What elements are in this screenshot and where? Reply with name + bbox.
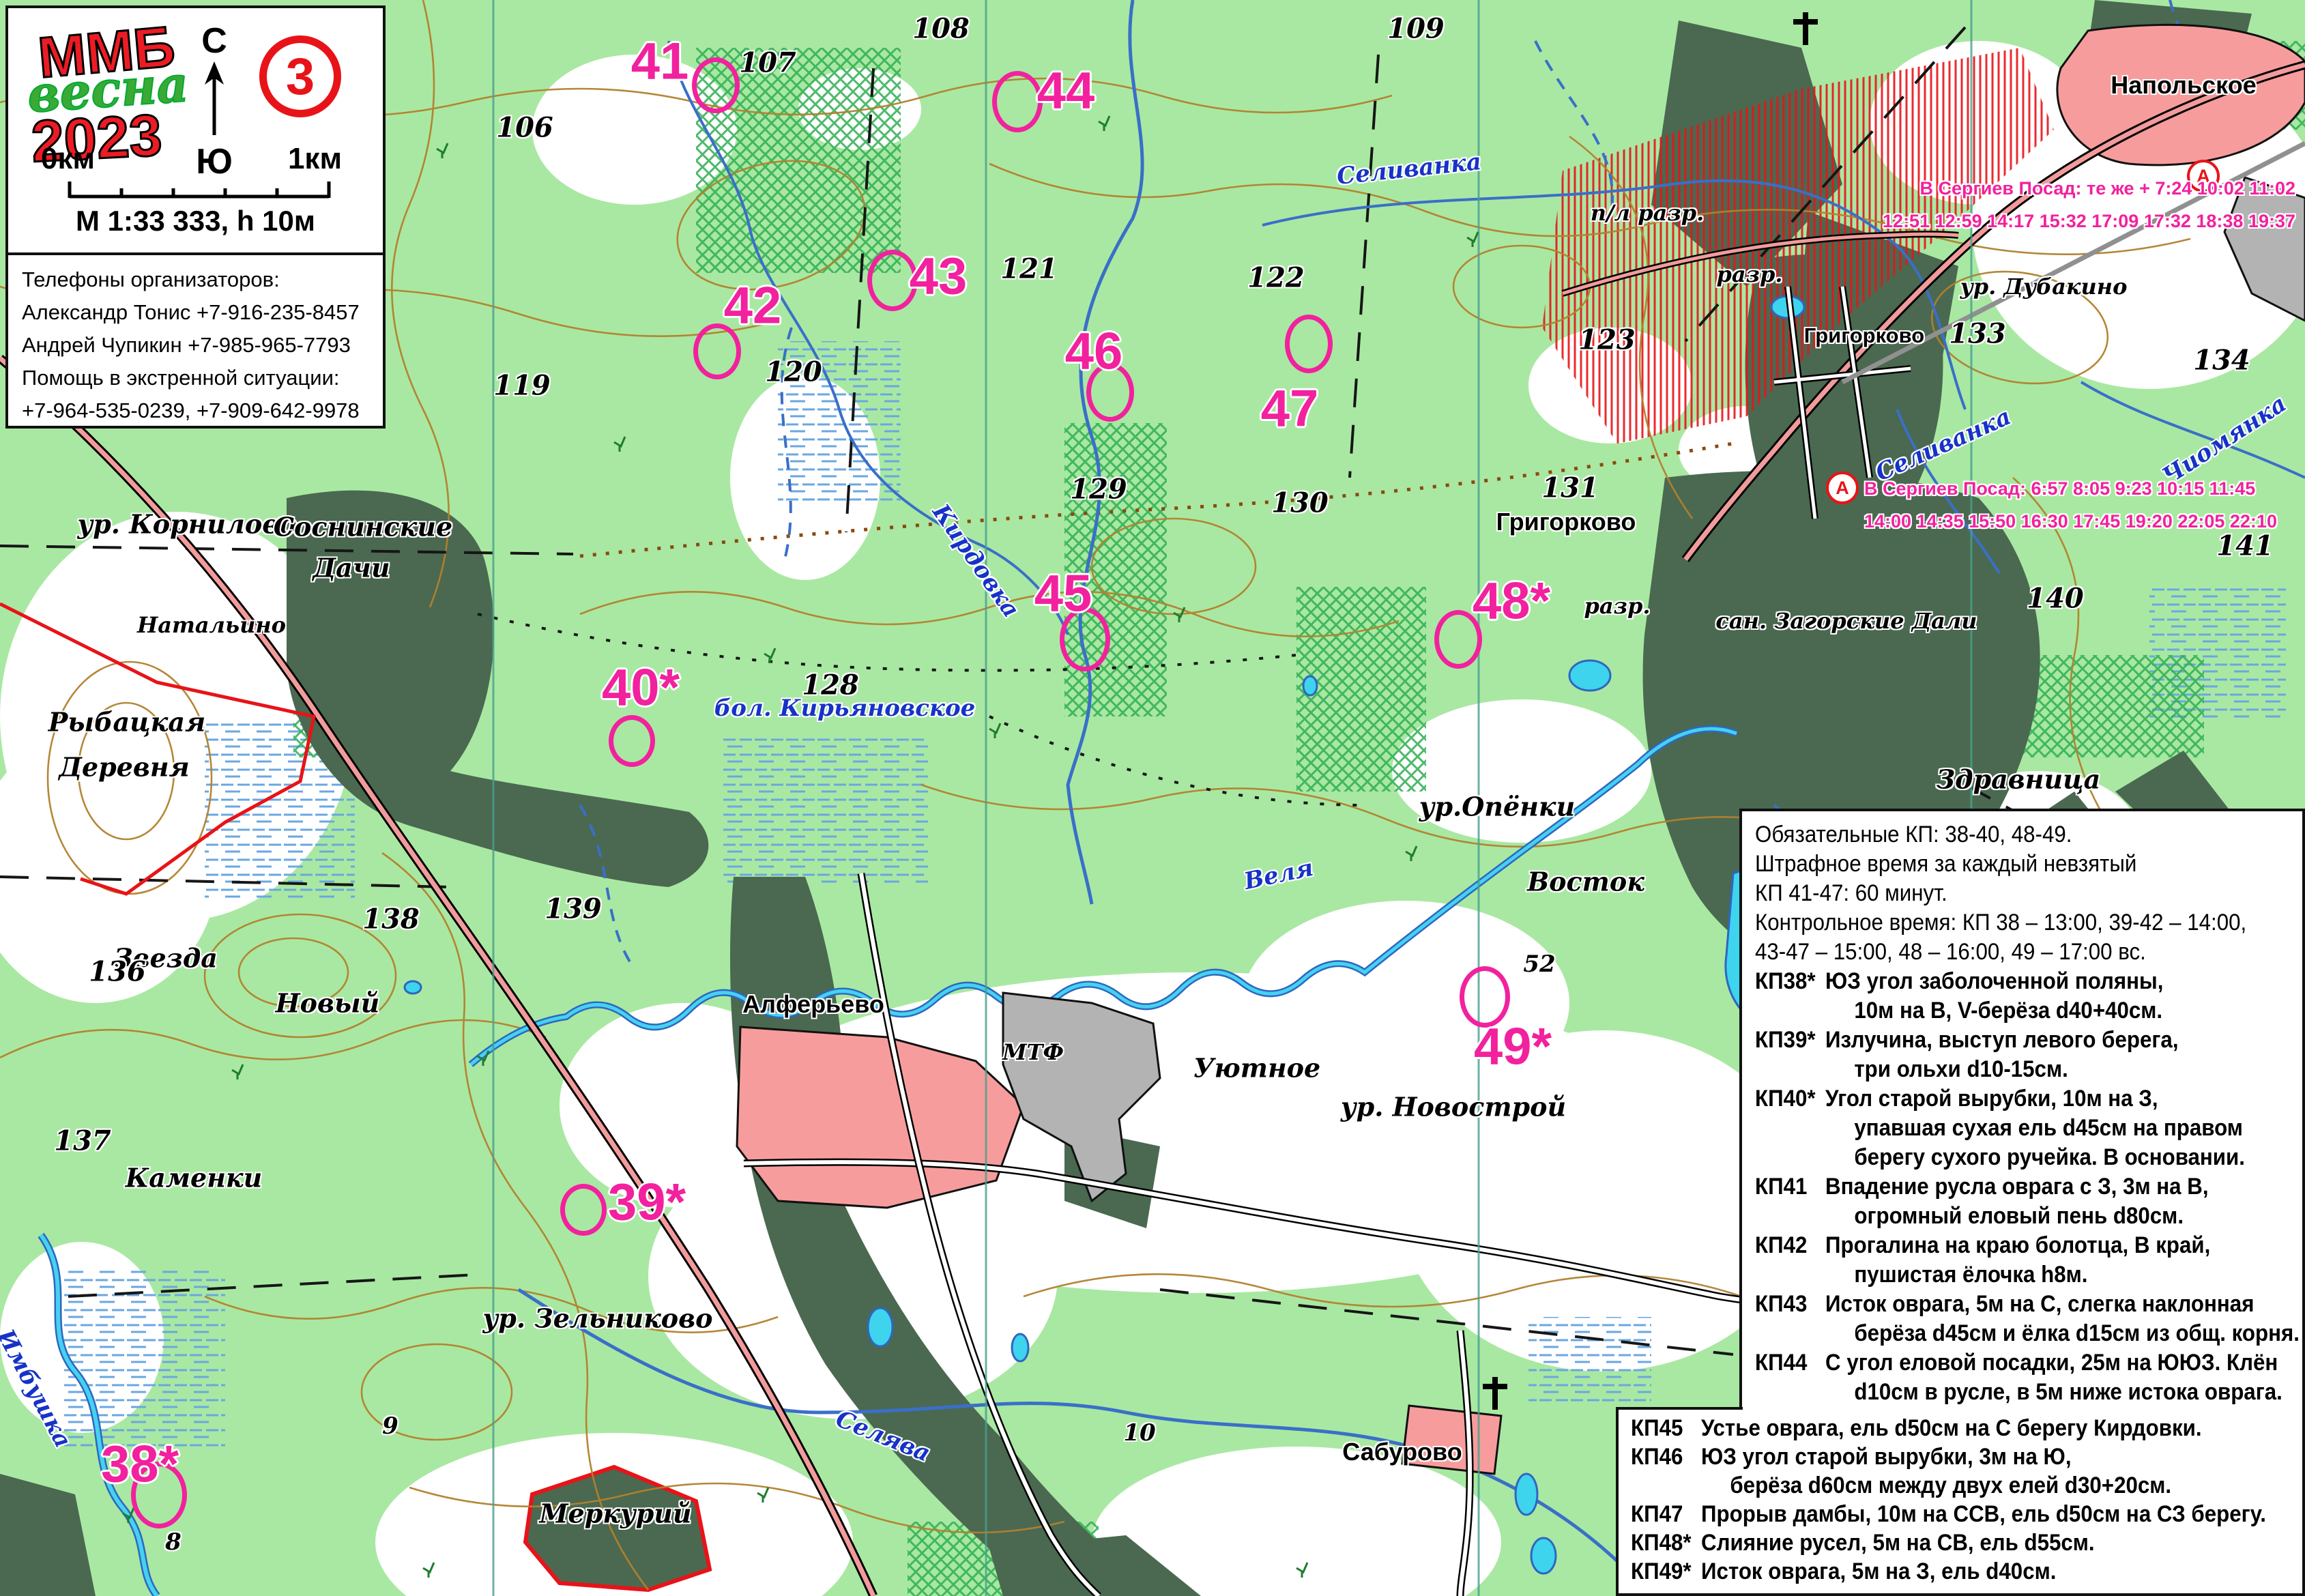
scale-zero-label: 0км — [41, 142, 95, 176]
scale-bar — [63, 177, 336, 201]
compass-north-label: С — [187, 20, 242, 61]
legend-panel-extension — [1616, 1407, 1743, 1596]
contacts-box: Телефоны организаторов: Александр Тонис … — [5, 252, 386, 429]
scale-one-km-label: 1км — [288, 142, 342, 176]
organizer-contacts: Телефоны организаторов: Александр Тонис … — [22, 263, 360, 427]
contacts-title: Телефоны организаторов: — [22, 263, 360, 296]
map-scale-text: М 1:33 333, h 10м — [8, 205, 383, 237]
compass-rose: С Ю — [187, 20, 242, 164]
contact-line: Помощь в экстренной ситуации: — [22, 362, 360, 394]
north-arrow-icon — [201, 61, 228, 136]
orienteering-map-page: НапольскоеГригорковоГригорковоАлферьевоС… — [0, 0, 2305, 1596]
contact-line: +7-964-535-0239, +7-909-642-9978 — [22, 394, 360, 427]
contact-line: Андрей Чупикин +7-985-965-7793 — [22, 329, 360, 362]
contact-line: Александр Тонис +7-916-235-8457 — [22, 296, 360, 329]
map-sheet-number: 3 — [259, 35, 341, 117]
legend-panel — [1739, 809, 2305, 1596]
compass-south-label: Ю — [187, 141, 242, 182]
header-box: ММБ весна 2023 С Ю 3 0км 1км М 1:33 333,… — [5, 5, 386, 255]
